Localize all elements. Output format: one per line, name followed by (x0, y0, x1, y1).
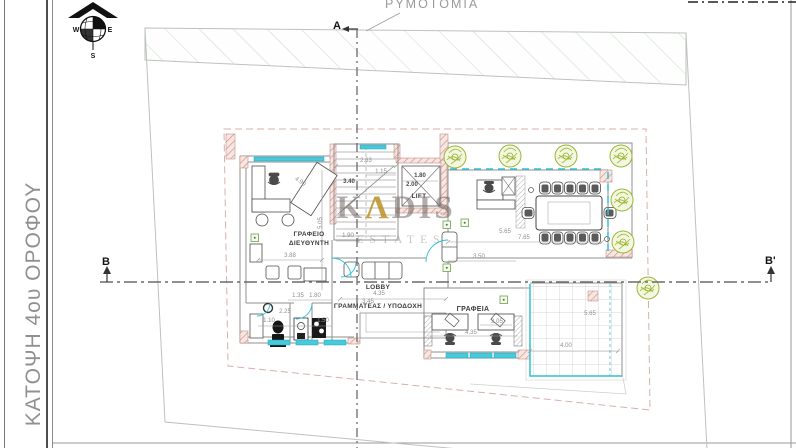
dim-terrace-width: 4.00 (560, 343, 572, 349)
room-label-offices: ΓΡΑΦΕΙΑ (457, 306, 490, 313)
dim-lift-width: 1.80 (414, 173, 426, 179)
dim-wc-c: 1.80 (309, 293, 321, 299)
dim-stair-length: 3.40 (343, 179, 355, 185)
room-label-lobby: LOBBY (366, 284, 390, 291)
conference-table (536, 196, 602, 230)
watermark-brand: KΛDIS (336, 192, 455, 225)
room-label-reception: ΓΡΑΜΜΑΤΕΑΣ / ΥΠΟΔΟΧΗ (334, 303, 422, 310)
dim-stair-width: 2.63 (360, 158, 372, 164)
compass-west-label: W (73, 27, 80, 34)
dim-offices-width: 4.35 (465, 330, 477, 336)
section-marker-a: A (333, 20, 341, 32)
dim-conference-b: 7.65 (518, 235, 530, 241)
compass-icon: W E S (68, 2, 118, 60)
terrace-grid (530, 284, 622, 376)
drawing-sheet: W E S ΚΑΤΟΨΗ 4ου ΟΡΟΦΟΥ ΡΥΜΟΤΟΜΙΑ A B B'… (0, 0, 796, 448)
dim-terrace-depth: 5.65 (584, 311, 596, 317)
dim-wc-a: 2.25 (279, 309, 291, 315)
parcel-boundary (145, 13, 707, 448)
dim-stair-flight: 1.15 (375, 169, 387, 175)
room-label-director-2: ΔΙΕΥΘΥΝΤΗ (289, 240, 329, 247)
section-marker-b-prime: B' (765, 255, 776, 267)
street-label-leader (366, 13, 400, 31)
compass-east-label: E (108, 27, 113, 34)
watermark-dis: DIS (392, 190, 456, 226)
dim-director-width: 3.88 (284, 253, 296, 259)
dim-wc-d: 1.50 (317, 318, 329, 324)
dim-director-depth: 5.05 (318, 217, 324, 229)
section-marker-b: B (102, 256, 110, 268)
street-alignment-label: ΡΥΜΟΤΟΜΙΑ (385, 0, 479, 11)
watermark-lambda: Λ (365, 190, 392, 226)
street-hatch-band (145, 28, 686, 85)
section-line-b (100, 266, 775, 282)
watermark-k: K (336, 190, 365, 226)
room-label-director-1: ΓΡΑΦΕΙΟ (294, 231, 325, 238)
dim-landing: 1.90 (342, 233, 354, 239)
dim-wc-e: 1.10 (263, 318, 275, 324)
dim-conference-c: 3.50 (473, 254, 485, 260)
dim-offices-desk: 2.05 (491, 319, 503, 325)
dim-conference-a: 5.65 (499, 229, 511, 235)
dim-reception: 3.45 (362, 299, 374, 305)
compass-south-label: S (91, 53, 96, 60)
sheet-title-vertical: ΚΑΤΟΨΗ 4ου ΟΡΟΦΟΥ (22, 134, 46, 448)
dim-lift-depth: 2.00 (406, 182, 418, 188)
dim-wc-b: 1.35 (292, 293, 304, 299)
dim-lobby: 4.35 (373, 291, 385, 297)
watermark-subtitle: ESTATES (357, 234, 446, 246)
